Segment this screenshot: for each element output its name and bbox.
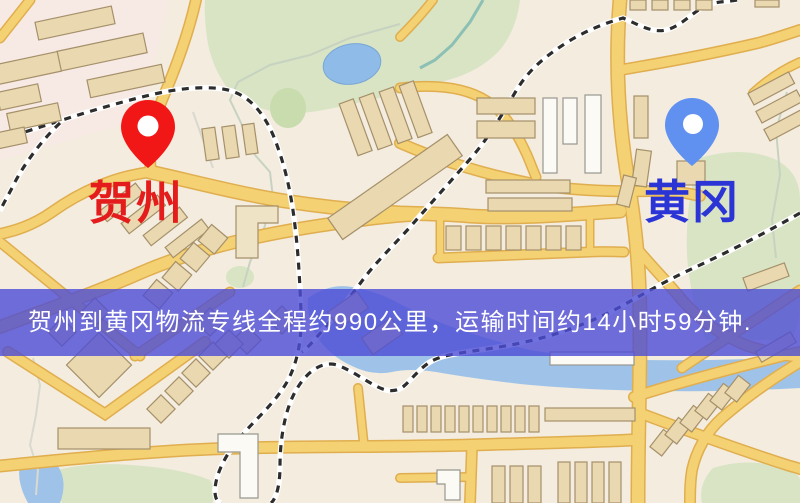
- map-pin-icon: [121, 100, 175, 168]
- destination-city-label: 黄冈: [644, 179, 740, 225]
- origin-marker-pin[interactable]: [121, 100, 175, 168]
- map-canvas: [0, 0, 800, 503]
- destination-marker-pin[interactable]: [665, 98, 719, 166]
- origin-city-label: 贺州: [88, 180, 184, 226]
- route-summary-text: 贺州到黄冈物流专线全程约990公里，运输时间约14小时59分钟.: [28, 289, 752, 356]
- route-map-screenshot: 贺州 黄冈 贺州到黄冈物流专线全程约990公里，运输时间约14小时59分钟.: [0, 0, 800, 503]
- route-info-banner: 贺州到黄冈物流专线全程约990公里，运输时间约14小时59分钟.: [0, 289, 800, 356]
- map-pin-icon: [665, 98, 719, 166]
